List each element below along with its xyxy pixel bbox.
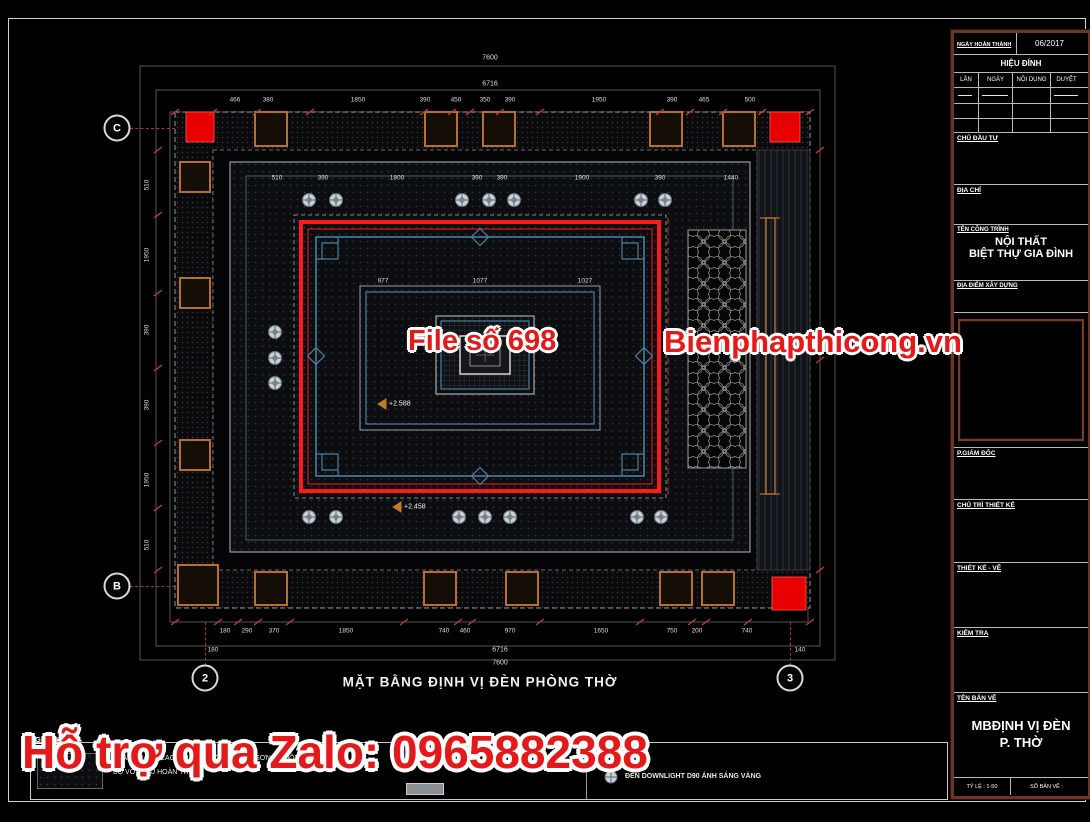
dim-label: 1027: [578, 278, 592, 285]
dim-label: 510: [144, 540, 151, 551]
dim-label: 1800: [390, 175, 404, 182]
title-block: NGÀY HOÀN THÀNH 06/2017 HIỆU ĐÍNH LẦN NG…: [951, 30, 1090, 799]
dim-label: 390: [472, 175, 483, 182]
dim-label: 390: [667, 97, 678, 104]
watermark-website: Bienphapthicong.vn: [664, 324, 962, 360]
level-annotation-upper: +2.588: [389, 401, 411, 408]
grid-bubble-3: 3: [777, 665, 804, 692]
leader-line: [205, 622, 206, 666]
project-name-line2: BIỆT THỰ GIA ĐÌNH: [954, 248, 1088, 260]
dim-label: 740: [742, 628, 753, 635]
dim-label: 390: [505, 97, 516, 104]
dim-top-total: 7600: [482, 55, 498, 62]
leader-line: [790, 622, 791, 666]
lead-designer-label: CHỦ TRÌ THIẾT KẾ: [954, 500, 1088, 509]
dim-label: 390: [420, 97, 431, 104]
revision-title: HIỆU ĐÍNH: [954, 55, 1088, 73]
project-label: TÊN CÔNG TRÌNH: [954, 225, 1088, 233]
scale-label: TỶ LỆ : 1-50: [954, 778, 1010, 795]
dim-label: 460: [460, 628, 471, 635]
sheet-name-label: TÊN BẢN VẼ: [954, 693, 1088, 702]
dim-label: 740: [439, 628, 450, 635]
address-label: ĐỊA CHỈ: [954, 185, 1088, 194]
watermark-zalo-support: Hỗ trợ qua Zalo: 0965882388: [22, 725, 648, 779]
designer-label: THIẾT KẾ - VẼ: [954, 563, 1088, 572]
dim-label: 290: [242, 628, 253, 635]
rev-col-duyet: DUYỆT: [1050, 73, 1082, 87]
dim-label: 510: [144, 180, 151, 191]
dim-label: 200: [692, 628, 703, 635]
leader-line: [130, 586, 175, 587]
logo-box: [958, 319, 1084, 441]
dim-bottom-total: 7600: [492, 660, 508, 667]
dim-label: 350: [480, 97, 491, 104]
director-label: P.GIÁM ĐỐC: [954, 448, 1088, 457]
dim-label: 390: [497, 175, 508, 182]
floor-plan-canvas: [0, 0, 950, 740]
sheet-number-label: SỐ BẢN VẼ :: [1010, 778, 1082, 795]
date-value: 06/2017: [1016, 33, 1082, 54]
dim-label: 380: [263, 97, 274, 104]
dim-label: 510: [272, 175, 283, 182]
location-label: ĐỊA ĐIỂM XÂY DỰNG: [954, 281, 1088, 289]
dim-label: 1950: [144, 248, 151, 262]
dim-label: 1650: [594, 628, 608, 635]
dim-label: 390: [144, 400, 151, 411]
legend-material-swatch: [406, 783, 444, 795]
dim-bottom-inner: 6716: [492, 647, 508, 654]
dim-label: 1850: [351, 97, 365, 104]
rev-col-ngay: NGÀY: [978, 73, 1012, 87]
grid-bubble-2: 2: [192, 665, 219, 692]
drawing-title: MẶT BẰNG ĐỊNH VỊ ĐÈN PHÒNG THỜ: [343, 675, 618, 690]
cad-viewport: 7600 6716 466 380 1850 390 450 350 390 1…: [0, 0, 1090, 822]
dim-label: 500: [745, 97, 756, 104]
rev-col-lan: LẦN: [954, 73, 978, 87]
grid-bubble-c: C: [104, 115, 131, 142]
sheet-name-line1: MBĐỊNH VỊ ĐÈN: [954, 718, 1088, 733]
dim-label: 140: [795, 647, 806, 654]
watermark-file-number: File số 698: [408, 325, 556, 358]
dim-label: 977: [378, 278, 389, 285]
dim-label: 390: [655, 175, 666, 182]
sheet-name-line2: P. THỜ: [954, 735, 1088, 750]
dim-label: 1440: [724, 175, 738, 182]
dim-label: 370: [269, 628, 280, 635]
level-annotation-lower: +2.458: [404, 504, 426, 511]
dim-label: 450: [451, 97, 462, 104]
dim-label: 180: [208, 647, 219, 654]
dim-label: 1950: [592, 97, 606, 104]
dim-label: 390: [144, 325, 151, 336]
dim-label: 1077: [473, 278, 487, 285]
investor-label: CHỦ ĐẦU TƯ: [954, 133, 1088, 142]
dim-top-inner: 6716: [482, 81, 498, 88]
dim-label: 750: [667, 628, 678, 635]
dim-label: 1850: [339, 628, 353, 635]
date-label: NGÀY HOÀN THÀNH: [954, 40, 1015, 48]
leader-line: [130, 128, 175, 129]
dim-label: 465: [699, 97, 710, 104]
checker-label: KIỂM TRA: [954, 628, 1088, 637]
dim-label: 970: [505, 628, 516, 635]
dim-label: 180: [220, 628, 231, 635]
dim-label: 390: [318, 175, 329, 182]
project-name-line1: NỘI THẤT: [954, 236, 1088, 248]
dim-label: 1900: [575, 175, 589, 182]
dim-label: 1950: [144, 473, 151, 487]
grid-bubble-b: B: [104, 573, 131, 600]
dim-label: 466: [230, 97, 241, 104]
rev-col-noidung: NỘI DUNG: [1012, 73, 1050, 87]
